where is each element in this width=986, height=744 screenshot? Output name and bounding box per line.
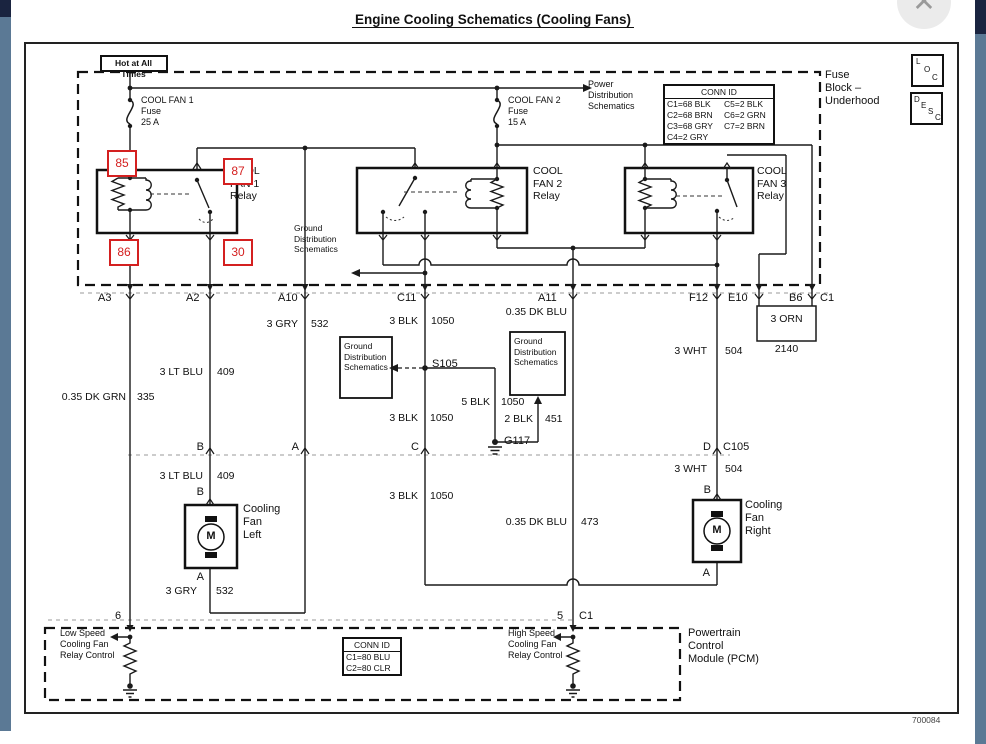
pcm-pin-6: 6 [115, 610, 121, 623]
wire-gry-num-2: 532 [216, 585, 234, 597]
wire-blk-name: 3 BLK [389, 315, 418, 327]
pin-a-row2: A [292, 441, 299, 454]
splice-s105: S105 [432, 358, 458, 371]
pcm-conn-c1: C1 [579, 610, 593, 623]
pcm-label: Powertrain Control Module (PCM) [688, 627, 759, 666]
gds-box-1: Ground Distribution Schematics [344, 341, 388, 373]
wire-dkgrn-num: 335 [137, 391, 155, 403]
pin-c-row2: C [411, 441, 419, 454]
loc-letter: O [924, 66, 930, 74]
wire-dkblu-name: 0.35 DK BLU [506, 306, 567, 318]
fuse-block-label: Fuse Block – Underhood [825, 69, 879, 108]
pin-85-badge: 85 [107, 150, 137, 177]
conn-f12: F12 [689, 292, 708, 305]
power-distribution-note: Power Distribution Schematics [588, 79, 635, 112]
gds-box-2: Ground Distribution Schematics [514, 336, 558, 368]
motor-left-label: Cooling Fan Left [243, 503, 280, 542]
conn-c105: C105 [723, 441, 749, 454]
motor-left-pin-a: A [197, 571, 204, 584]
desc-letter: S [928, 108, 933, 116]
wire-gry-name: 3 GRY [267, 318, 298, 330]
hot-at-all-times-tag: Hot at All Times [100, 55, 168, 72]
left-edge-strip-cap [0, 0, 11, 17]
desc-letter: D [914, 96, 920, 104]
wire-orn-name: 3 ORN [757, 313, 816, 325]
motor-left-m: M [205, 530, 217, 542]
wire-blk-num-2: 1050 [430, 412, 453, 424]
pcm-low-speed-label: Low Speed Cooling Fan Relay Control [60, 628, 115, 661]
wire-blk-name-2: 3 BLK [389, 412, 418, 424]
wire-ltblu-name-2: 3 LT BLU [160, 470, 203, 482]
wire-dkgrn-name: 0.35 DK GRN [62, 391, 126, 403]
fuse1-label: COOL FAN 1 Fuse 25 A [141, 95, 194, 128]
close-icon: ✕ [897, 0, 951, 29]
motor-left-pin-b: B [197, 486, 204, 499]
schematic-page: ✕ Engine Cooling Schematics (Cooling Fan… [0, 0, 986, 744]
pin-b-row2: B [197, 441, 204, 454]
wire-gry-num: 532 [311, 318, 329, 330]
motor-right-label: Cooling Fan Right [745, 499, 782, 538]
conn-e10: E10 [728, 292, 748, 305]
wire-orn-num: 2140 [757, 343, 816, 355]
loc-button[interactable]: L O C [911, 54, 944, 87]
right-edge-strip [975, 0, 986, 744]
wire-gry-name-2: 3 GRY [166, 585, 197, 597]
ground-g117: G117 [504, 435, 530, 448]
loc-letter: C [932, 74, 938, 82]
right-edge-strip-cap [975, 0, 986, 34]
conn-c1: C1 [820, 292, 834, 305]
motor-right-pin-b: B [704, 484, 711, 497]
pcm-pin-5: 5 [557, 610, 563, 623]
pin-86-badge: 86 [109, 239, 139, 266]
drawing-number: 700084 [912, 714, 940, 726]
wire-wht-num: 504 [725, 345, 743, 357]
conn-b6: B6 [789, 292, 802, 305]
desc-letter: C [935, 114, 941, 122]
wire-ltblu-num-2: 409 [217, 470, 235, 482]
wire-wht-name-2: 3 WHT [674, 463, 707, 475]
ground-distribution-note: Ground Distribution Schematics [294, 223, 338, 255]
loc-letter: L [916, 58, 920, 66]
conn-a3: A3 [98, 292, 111, 305]
left-edge-strip [0, 0, 11, 731]
wire-ltblu-name: 3 LT BLU [160, 366, 203, 378]
conn-a2: A2 [186, 292, 199, 305]
motor-right-pin-a: A [703, 567, 710, 580]
motor-right-m: M [711, 524, 723, 536]
wire-ltblu-num: 409 [217, 366, 235, 378]
pin-30-badge: 30 [223, 239, 253, 266]
wire-blk2-name: 2 BLK [504, 413, 533, 425]
desc-letter: E [921, 102, 926, 110]
wire-dkblu-num: 473 [581, 516, 599, 528]
pin-d-row2: D [703, 441, 711, 454]
relay2-label: COOL FAN 2 Relay [533, 165, 563, 203]
pcm-high-speed-label: High Speed Cooling Fan Relay Control [508, 628, 563, 661]
wire-dkblu-name-2: 0.35 DK BLU [506, 516, 567, 528]
wire-wht-name: 3 WHT [674, 345, 707, 357]
desc-button[interactable]: D E S C [910, 92, 943, 125]
wire-blk-name-3: 3 BLK [389, 490, 418, 502]
fuse2-label: COOL FAN 2 Fuse 15 A [508, 95, 561, 128]
wire-blk2-num: 451 [545, 413, 563, 425]
conn-id-table-pcm: CONN ID C1=80 BLU C2=80 CLR [342, 637, 402, 676]
close-button[interactable]: ✕ [897, 0, 951, 29]
wire-blk5-name: 5 BLK [461, 396, 490, 408]
wire-blk5-num: 1050 [501, 396, 524, 408]
wire-wht-num-2: 504 [725, 463, 743, 475]
pin-87-badge: 87 [223, 158, 253, 185]
relay3-label: COOL FAN 3 Relay [757, 165, 787, 203]
conn-a10: A10 [278, 292, 298, 305]
wire-blk-num: 1050 [431, 315, 454, 327]
wire-blk-num-3: 1050 [430, 490, 453, 502]
conn-id-table-fuse-block: CONN ID C1=68 BLK C2=68 BRN C3=68 GRY C4… [663, 84, 775, 145]
conn-a11: A11 [538, 292, 557, 305]
conn-c11: C11 [397, 292, 416, 305]
